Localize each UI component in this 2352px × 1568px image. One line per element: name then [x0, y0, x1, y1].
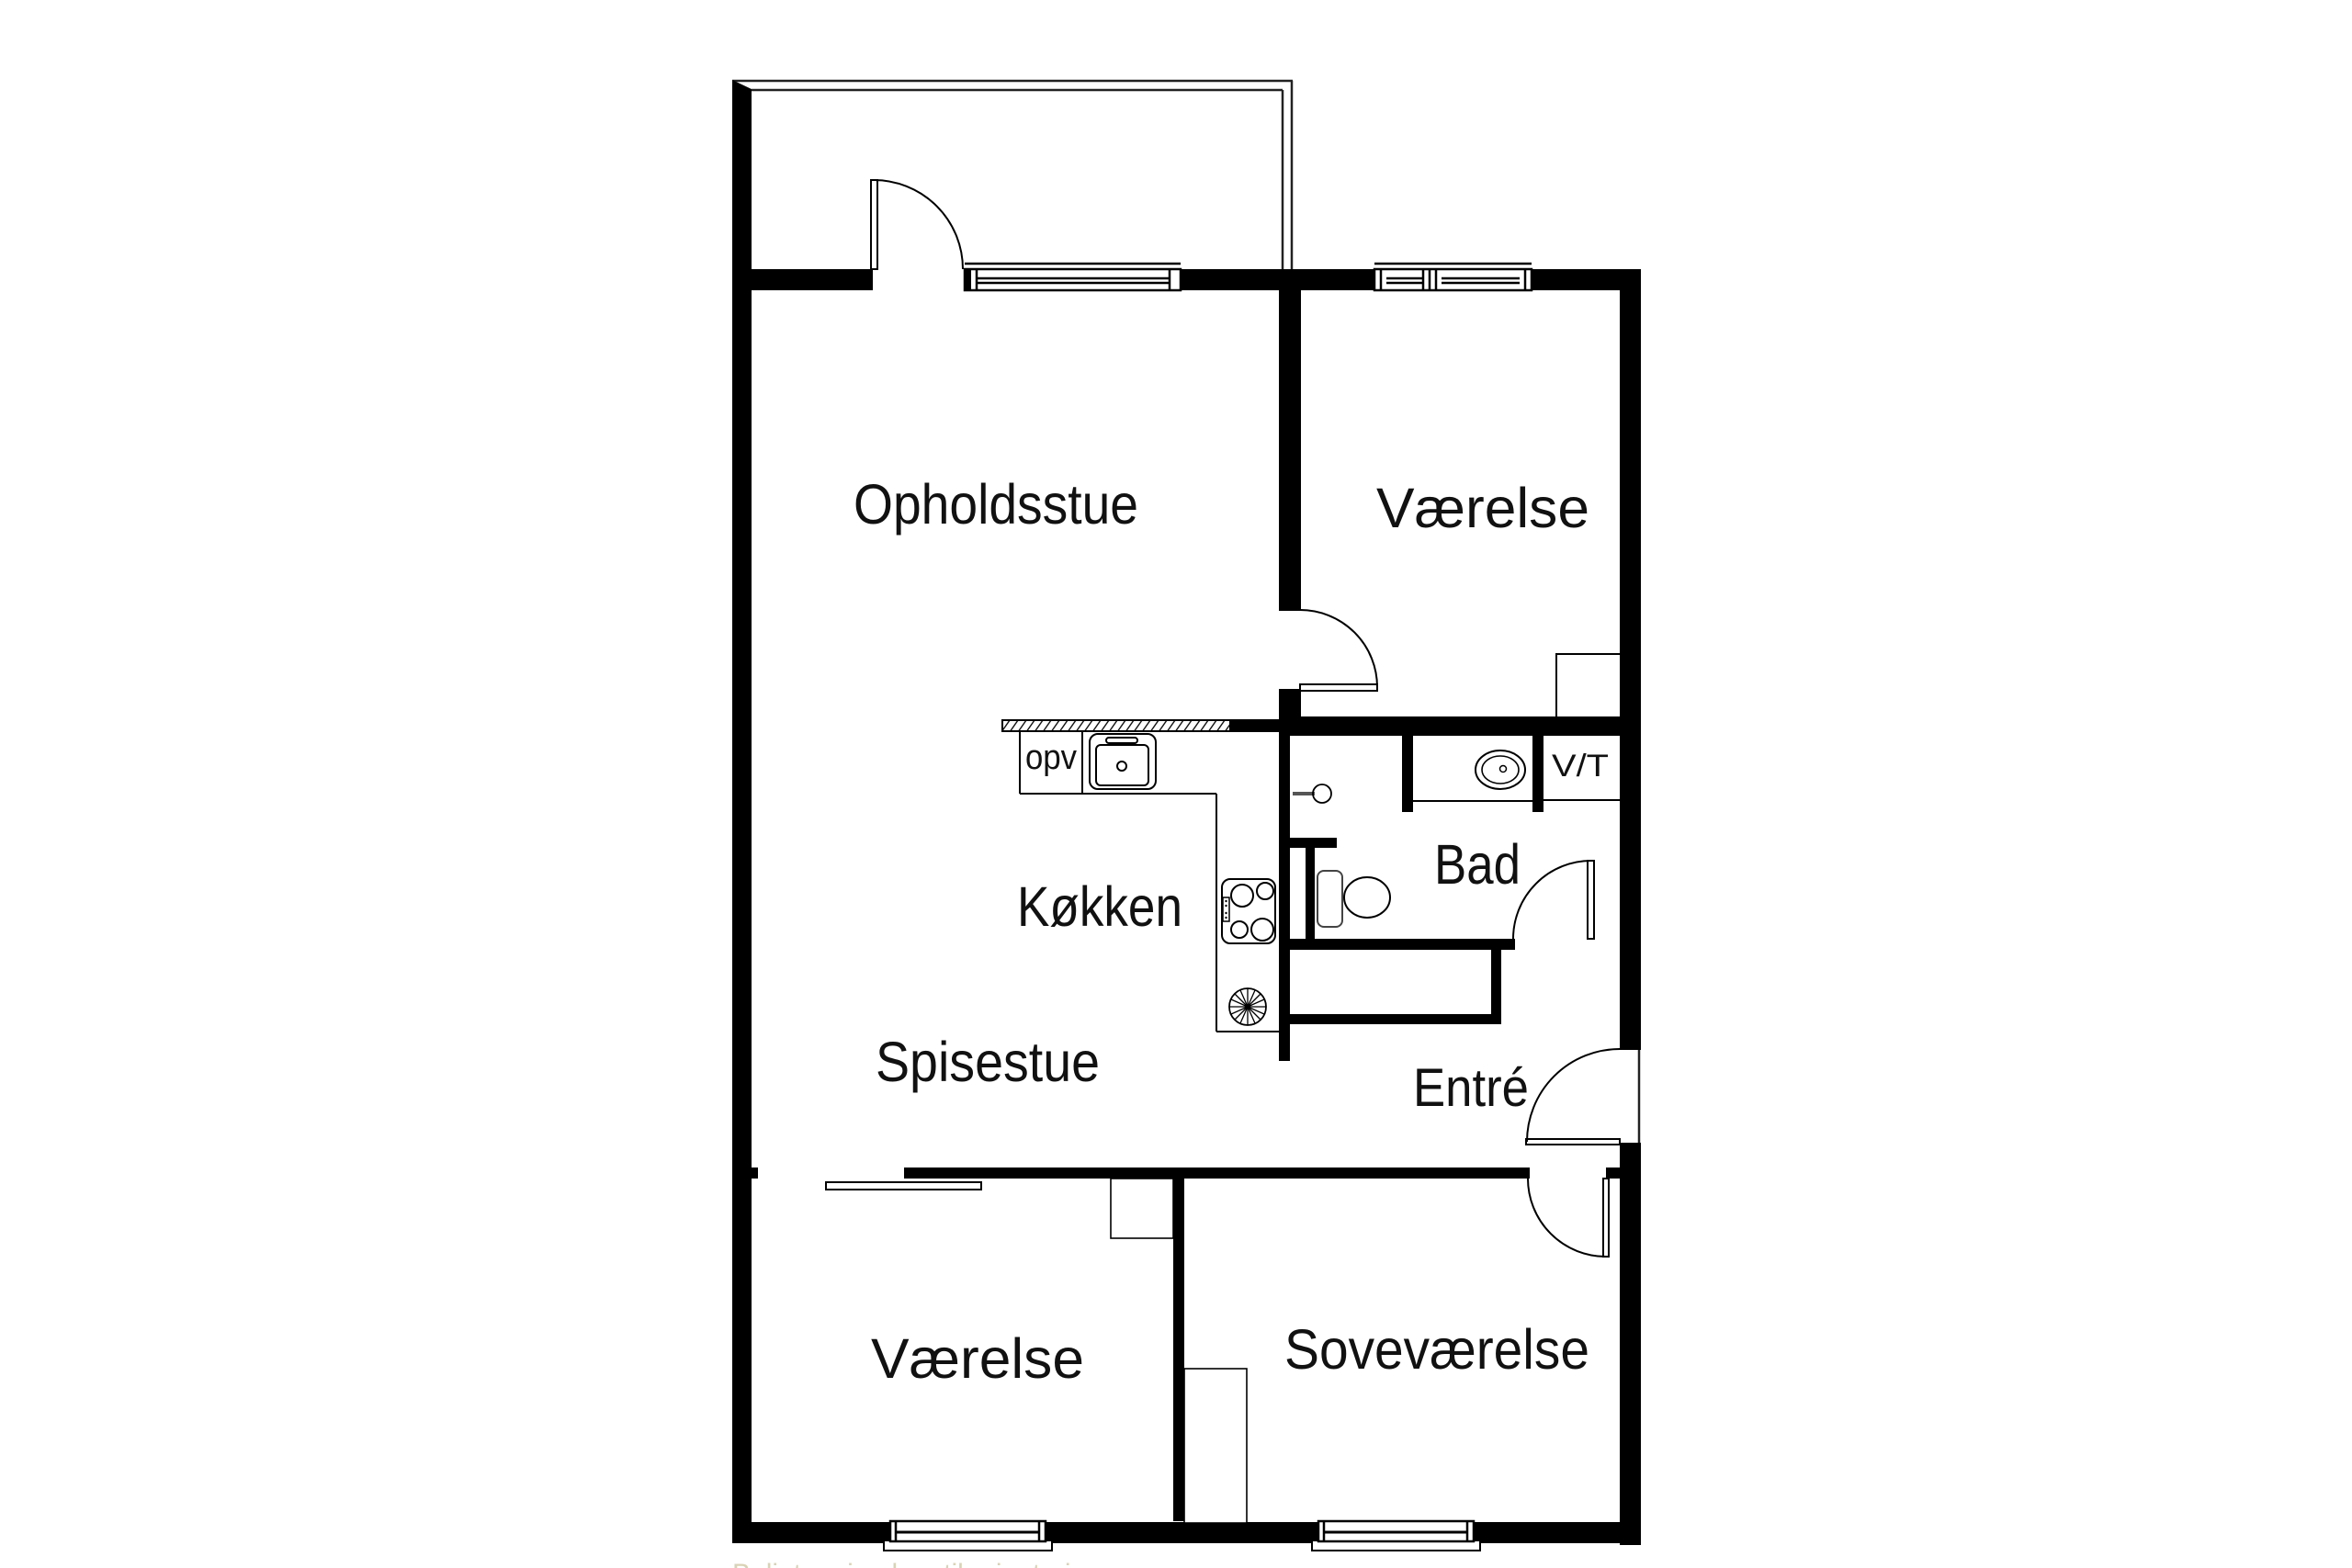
svg-text:Soveværelse: Soveværelse [1284, 1318, 1589, 1381]
svg-text:Boligtegning kun til orienteri: Boligtegning kun til orientering [732, 1559, 1102, 1568]
svg-text:V/T: V/T [1552, 749, 1609, 784]
svg-text:Entré: Entré [1413, 1058, 1529, 1118]
svg-text:Værelse: Værelse [1376, 477, 1589, 539]
svg-text:Værelse: Værelse [871, 1327, 1084, 1390]
svg-text:opv: opv [1025, 739, 1077, 777]
svg-text:Bad: Bad [1434, 833, 1521, 896]
svg-text:Opholdsstue: Opholdsstue [854, 473, 1138, 536]
svg-text:Køkken: Køkken [1017, 875, 1182, 938]
svg-text:Spisestue: Spisestue [876, 1031, 1100, 1093]
